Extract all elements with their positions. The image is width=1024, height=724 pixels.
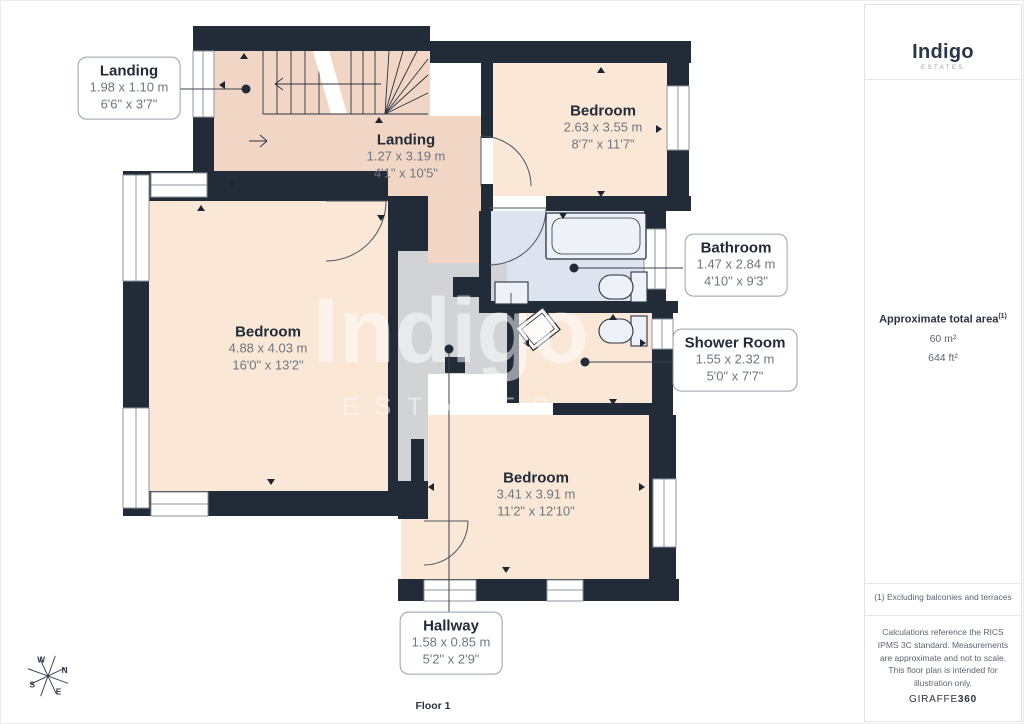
compass-star <box>21 649 76 704</box>
room-dim-metric: 1.47 x 2.84 m <box>697 257 776 274</box>
total-area-m2: 60 m² <box>865 333 1021 345</box>
info-panel: Indigo ESTATES Approximate total area(1)… <box>864 4 1022 722</box>
divider <box>865 79 1021 80</box>
divider <box>865 583 1021 584</box>
room-label-shower-room: Shower Room 1.55 x 2.32 m 5'0" x 7'7" <box>673 329 798 392</box>
room-label-bedroom-top: Bedroom 2.63 x 3.55 m 8'7" x 11'7" <box>564 103 643 154</box>
compass-rose: W N S E <box>9 639 87 717</box>
toilet <box>599 272 647 302</box>
room-dim-metric: 3.41 x 3.91 m <box>497 487 576 504</box>
total-area-superscript: (1) <box>998 313 1007 320</box>
room-dim-metric: 1.27 x 3.19 m <box>367 149 446 166</box>
room-name: Bedroom <box>564 103 643 120</box>
room-dim-metric: 1.55 x 2.32 m <box>685 352 786 369</box>
total-area-title-text: Approximate total area <box>879 314 998 326</box>
total-area-block: Approximate total area(1) 60 m² 644 ft² <box>865 313 1021 364</box>
compass-north: N <box>62 666 68 675</box>
disclaimer: Calculations reference the RICS IPMS 3C … <box>873 626 1013 690</box>
room-dim-imperial: 4'1" x 10'5" <box>367 166 446 183</box>
room-name: Landing <box>367 132 446 149</box>
room-dim-imperial: 8'7" x 11'7" <box>564 137 643 154</box>
sink <box>495 282 528 304</box>
footnote: (1) Excluding balconies and terraces <box>865 592 1021 602</box>
brand-logo-subtitle: ESTATES <box>865 65 1021 71</box>
compass-south: S <box>29 681 35 690</box>
provider-suffix: 360 <box>958 694 977 705</box>
room-dim-imperial: 5'0" x 7'7" <box>685 369 786 386</box>
compass-west: W <box>37 655 45 664</box>
bathtub <box>546 213 646 259</box>
room-dim-imperial: 4'10" x 9'3" <box>697 274 776 291</box>
brand-logo: Indigo <box>865 41 1021 64</box>
room-dim-metric: 1.58 x 0.85 m <box>412 635 491 652</box>
floor-label: Floor 1 <box>388 700 478 712</box>
room-dim-imperial: 5'2" x 2'9" <box>412 652 491 669</box>
room-label-landing-small: Landing 1.98 x 1.10 m 6'6" x 3'7" <box>78 57 181 120</box>
room-name: Bathroom <box>697 240 776 257</box>
room-name: Hallway <box>412 618 491 635</box>
toilet <box>599 316 647 346</box>
room-dim-imperial: 11'2" x 12'10" <box>497 504 576 521</box>
room-dim-metric: 2.63 x 3.55 m <box>564 120 643 137</box>
room-name: Bedroom <box>497 470 576 487</box>
room-dim-metric: 4.88 x 4.03 m <box>229 341 308 358</box>
room-label-hallway: Hallway 1.58 x 0.85 m 5'2" x 2'9" <box>400 612 503 675</box>
room-label-bathroom: Bathroom 1.47 x 2.84 m 4'10" x 9'3" <box>685 234 788 297</box>
floorplan-page: Indigo ESTATES Landing 1.98 x 1.10 m 6'6… <box>0 0 1024 724</box>
room-dim-imperial: 6'6" x 3'7" <box>90 97 169 114</box>
room-label-bedroom-bottom: Bedroom 3.41 x 3.91 m 11'2" x 12'10" <box>497 470 576 521</box>
room-label-landing-main: Landing 1.27 x 3.19 m 4'1" x 10'5" <box>367 132 446 183</box>
provider-logo: GIRAFFE360 <box>865 694 1021 705</box>
total-area-title: Approximate total area(1) <box>865 313 1021 326</box>
compass-east: E <box>56 688 62 697</box>
room-name: Shower Room <box>685 335 786 352</box>
room-name: Bedroom <box>229 324 308 341</box>
divider <box>865 615 1021 616</box>
room-name: Landing <box>90 63 169 80</box>
provider-name: GIRAFFE <box>909 694 958 705</box>
room-label-bedroom-left: Bedroom 4.88 x 4.03 m 16'0" x 13'2" <box>229 324 308 375</box>
room-dim-imperial: 16'0" x 13'2" <box>229 358 308 375</box>
total-area-ft2: 644 ft² <box>865 352 1021 364</box>
room-dim-metric: 1.98 x 1.10 m <box>90 80 169 97</box>
